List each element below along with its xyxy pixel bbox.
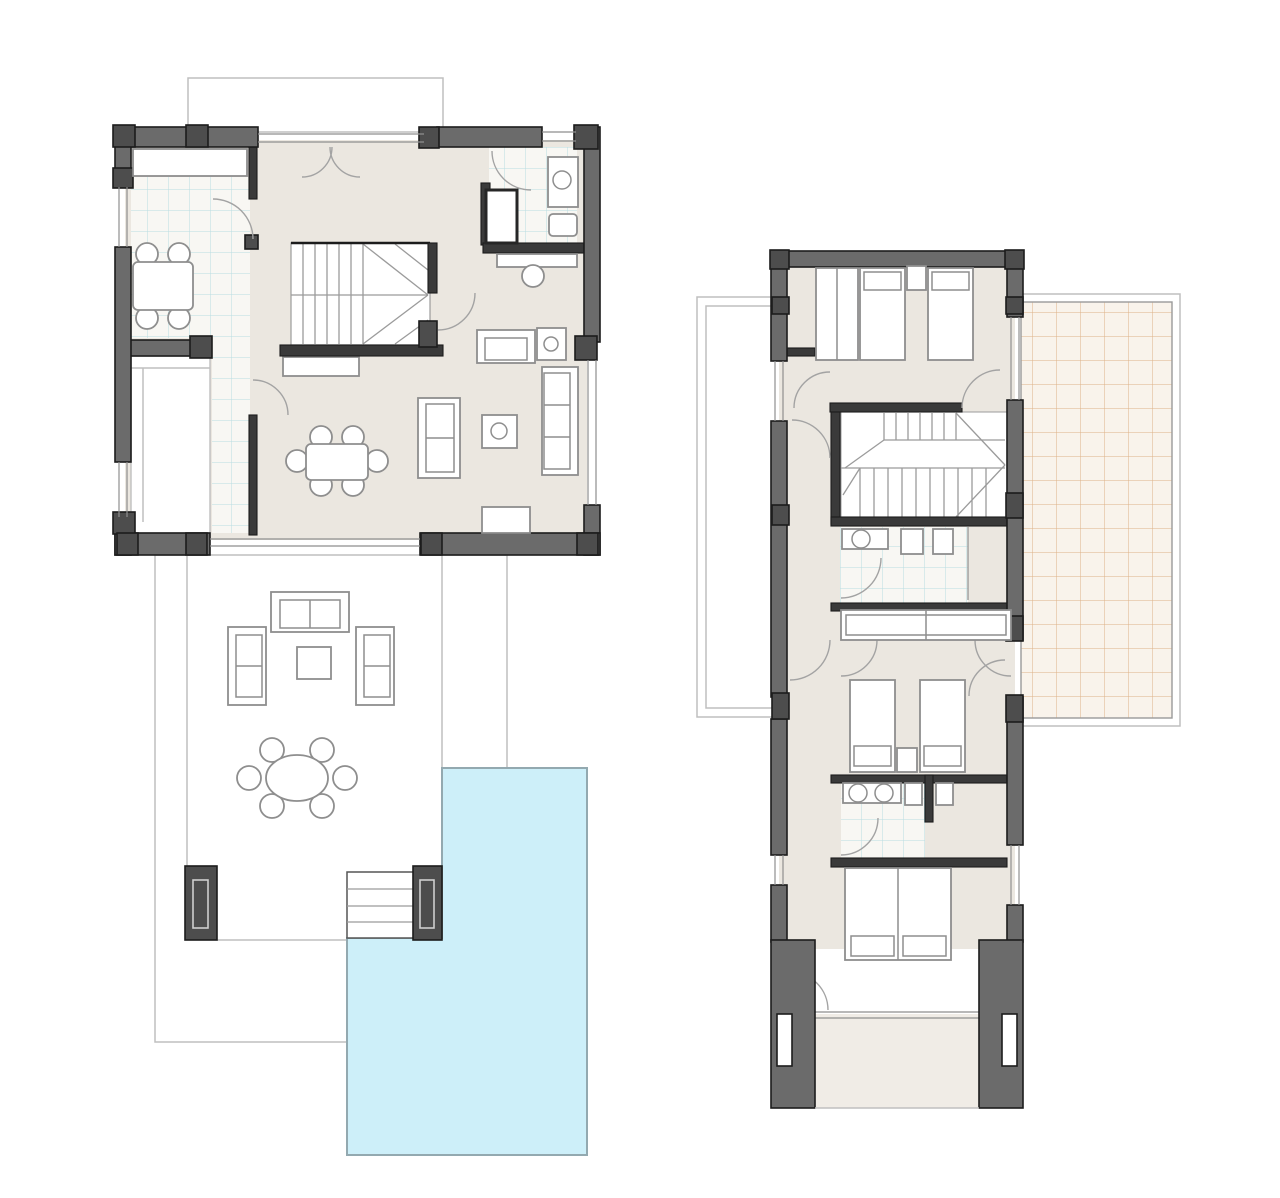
- wall: [420, 533, 600, 555]
- wall: [437, 127, 542, 147]
- corner-block: [1006, 695, 1023, 722]
- wall: [831, 517, 1007, 526]
- wall: [1007, 400, 1023, 640]
- sofa: [542, 367, 578, 475]
- dining-chair: [366, 450, 388, 472]
- wall: [115, 247, 131, 462]
- toilet: [905, 783, 922, 805]
- outdoor-chair: [237, 766, 261, 790]
- sliding-door: [210, 539, 420, 546]
- outdoor-chair: [333, 766, 357, 790]
- swimming-pool: [347, 768, 587, 1155]
- corner-block: [574, 125, 598, 149]
- wall: [831, 412, 840, 524]
- outdoor-lounge-set: [228, 592, 394, 705]
- balcony-pillar: [979, 940, 1023, 1108]
- wall: [771, 885, 787, 942]
- wall: [771, 421, 787, 697]
- corner-block: [186, 125, 208, 147]
- shower: [486, 190, 517, 243]
- wall: [428, 243, 437, 293]
- bedroom-1: [816, 266, 973, 360]
- corner-block: [1006, 493, 1023, 518]
- side-table: [537, 328, 566, 360]
- outdoor-dining-table: [237, 738, 357, 818]
- corner-block: [113, 168, 133, 188]
- sideboard: [283, 357, 359, 376]
- corner-block: [419, 127, 439, 148]
- corner-block: [772, 505, 789, 525]
- floor-plan-page: [0, 0, 1280, 1198]
- tv-bench: [482, 507, 530, 533]
- washbasin-unit: [842, 529, 888, 549]
- outdoor-coffee-table: [297, 647, 331, 679]
- closet: [841, 610, 1011, 640]
- single-bed: [928, 268, 973, 360]
- dining-chair: [286, 450, 308, 472]
- toilet: [549, 214, 577, 236]
- kitchen-counter: [133, 149, 247, 176]
- pool-steps: [347, 872, 417, 938]
- single-bed: [850, 680, 895, 772]
- window: [542, 132, 576, 141]
- bidet: [936, 783, 953, 805]
- corner-block: [245, 235, 258, 249]
- hall-floor-tiles: [212, 338, 250, 533]
- wall: [831, 858, 1007, 867]
- corner-block: [186, 533, 207, 555]
- balcony-pillar: [771, 940, 815, 1108]
- corner-block: [575, 336, 597, 360]
- nightstand: [897, 748, 917, 772]
- corner-block: [113, 125, 135, 147]
- kitchen-table: [133, 262, 193, 310]
- staircase: [841, 412, 1007, 518]
- corner-block: [113, 512, 135, 534]
- terrace-pillar: [185, 866, 217, 940]
- corner-block: [190, 336, 212, 358]
- wall: [249, 147, 257, 199]
- corner-block: [577, 533, 598, 555]
- ground-floor-plan: [113, 78, 600, 1155]
- wall: [128, 340, 192, 356]
- corner-block: [772, 297, 789, 314]
- upper-terrace: [188, 78, 443, 132]
- toilet: [901, 529, 923, 554]
- wall: [787, 348, 815, 356]
- corner-block: [421, 533, 442, 555]
- wall: [771, 251, 1023, 267]
- coffee-table: [482, 415, 517, 448]
- bedroom-3: [845, 868, 951, 960]
- corner-block: [770, 250, 789, 269]
- wall: [925, 775, 933, 822]
- terrace-pillar: [413, 866, 442, 940]
- corner-block: [1005, 250, 1024, 269]
- single-bed: [920, 680, 965, 772]
- wall: [830, 403, 962, 412]
- dining-table: [306, 444, 368, 480]
- roof-terrace: [1013, 294, 1180, 726]
- window: [588, 360, 596, 505]
- balcony-floor: [787, 1014, 1008, 1108]
- wall: [249, 415, 257, 535]
- corner-block: [419, 321, 437, 347]
- wall: [1007, 905, 1023, 942]
- nightstand: [907, 266, 926, 290]
- floor-plan-image: [0, 0, 1280, 1198]
- wall: [771, 719, 787, 855]
- single-bed: [860, 268, 905, 360]
- balcony: [771, 940, 1023, 1108]
- entry-porch: [131, 356, 210, 533]
- bathroom-2: [843, 783, 953, 805]
- wall: [584, 127, 600, 342]
- corner-block: [117, 533, 138, 555]
- bidet: [933, 529, 953, 554]
- corner-block: [1006, 297, 1023, 314]
- corner-block: [772, 693, 789, 719]
- wall: [831, 775, 1007, 783]
- first-floor-plan: [697, 250, 1180, 1108]
- vanity-basin: [522, 265, 544, 287]
